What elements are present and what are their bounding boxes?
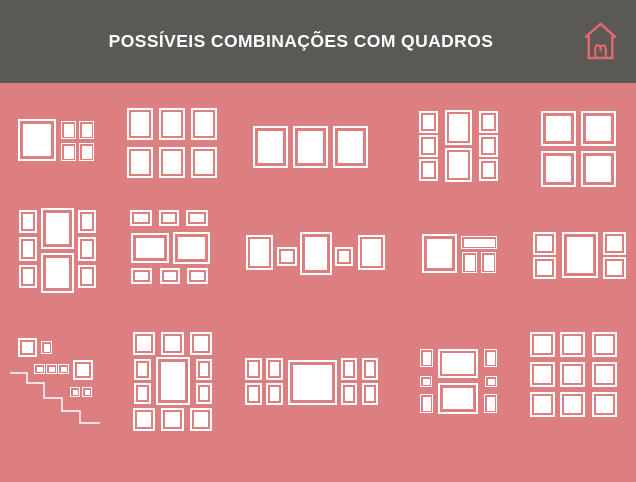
picture-frame-mat [596, 366, 613, 383]
picture-frame-mat [564, 336, 581, 353]
home-icon [583, 20, 618, 61]
layout-grid-3x3-squares [0, 83, 636, 482]
picture-frame [530, 332, 555, 357]
picture-frame [530, 392, 555, 417]
picture-frame-mat [534, 336, 551, 353]
picture-frame-mat [534, 396, 551, 413]
page: POSSÍVEIS COMBINAÇÕES COM QUADROS [0, 0, 636, 482]
picture-frame-mat [596, 336, 613, 353]
picture-frame [530, 362, 555, 387]
picture-frame-mat [564, 396, 581, 413]
picture-frame [592, 332, 617, 357]
picture-frame-mat [564, 366, 581, 383]
frame-combinations-board [0, 83, 636, 482]
home-button[interactable] [583, 20, 618, 61]
picture-frame [560, 362, 585, 387]
picture-frame [560, 392, 585, 417]
picture-frame-mat [596, 396, 613, 413]
header: POSSÍVEIS COMBINAÇÕES COM QUADROS [0, 0, 636, 83]
picture-frame [592, 392, 617, 417]
page-title: POSSÍVEIS COMBINAÇÕES COM QUADROS [109, 31, 528, 52]
picture-frame-mat [534, 366, 551, 383]
picture-frame [592, 362, 617, 387]
picture-frame [560, 332, 585, 357]
